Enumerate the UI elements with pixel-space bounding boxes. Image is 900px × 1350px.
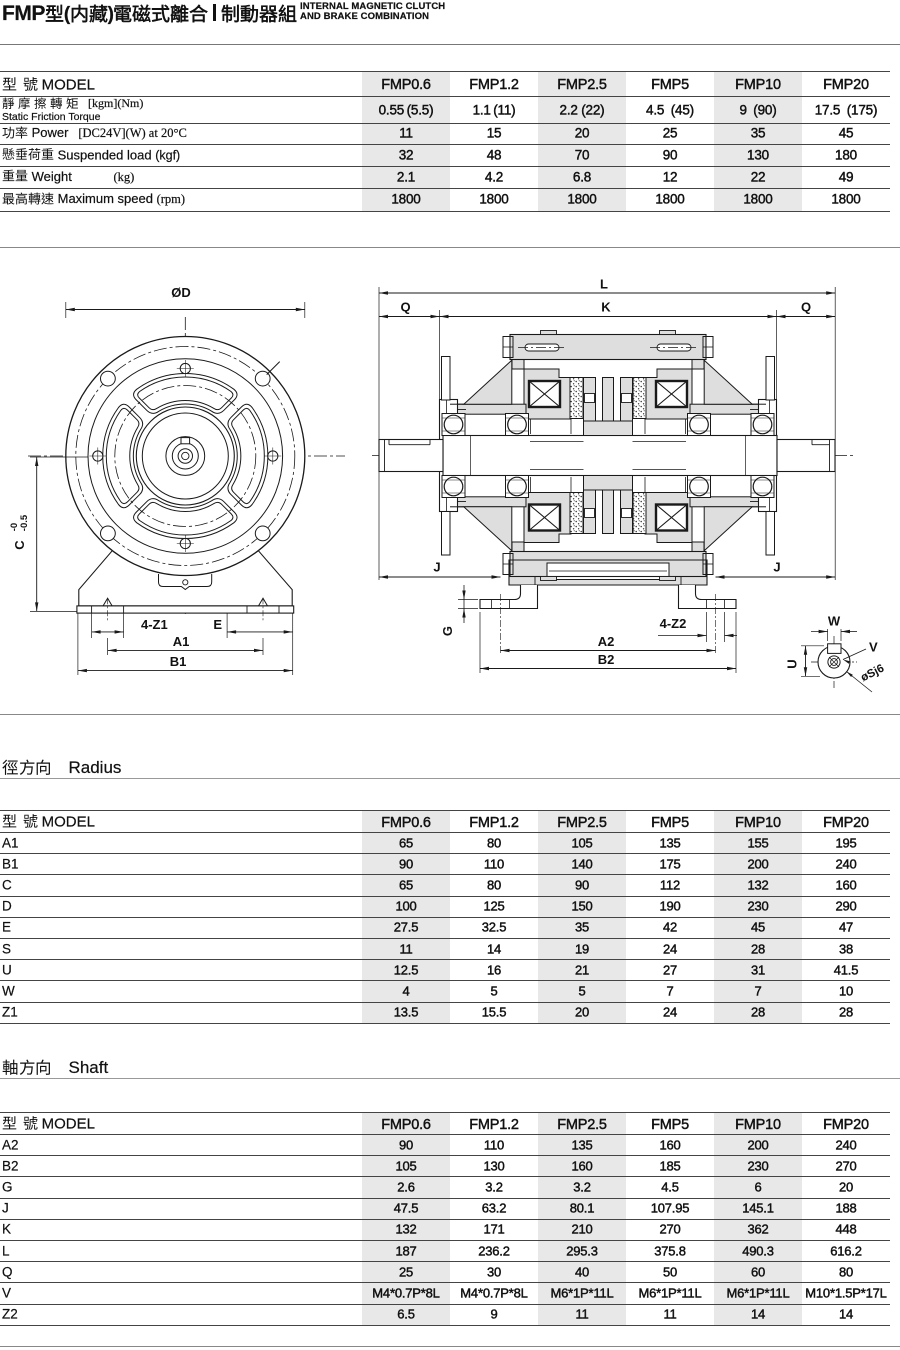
svg-text:U: U <box>785 659 800 668</box>
svg-text:J: J <box>773 560 780 575</box>
svg-text:Q: Q <box>801 300 811 315</box>
svg-text:G: G <box>440 626 455 636</box>
svg-text:-0.5: -0.5 <box>19 514 30 531</box>
svg-text:B1: B1 <box>170 654 187 669</box>
svg-text:K: K <box>601 300 611 315</box>
svg-text:W: W <box>828 614 841 629</box>
svg-text:-0: -0 <box>9 523 20 531</box>
svg-text:L: L <box>600 277 608 292</box>
svg-text:B2: B2 <box>598 652 615 667</box>
svg-text:ØD: ØD <box>171 285 191 300</box>
svg-text:V: V <box>869 640 878 655</box>
svg-text:øSj6: øSj6 <box>859 662 886 684</box>
svg-text:A2: A2 <box>598 634 615 649</box>
svg-text:C: C <box>12 540 27 550</box>
svg-text:Q: Q <box>400 300 410 315</box>
svg-text:4-Z1: 4-Z1 <box>141 617 168 632</box>
svg-text:4-Z2: 4-Z2 <box>660 616 687 631</box>
svg-text:E: E <box>213 617 222 632</box>
svg-text:A1: A1 <box>173 634 190 649</box>
svg-text:J: J <box>433 560 440 575</box>
